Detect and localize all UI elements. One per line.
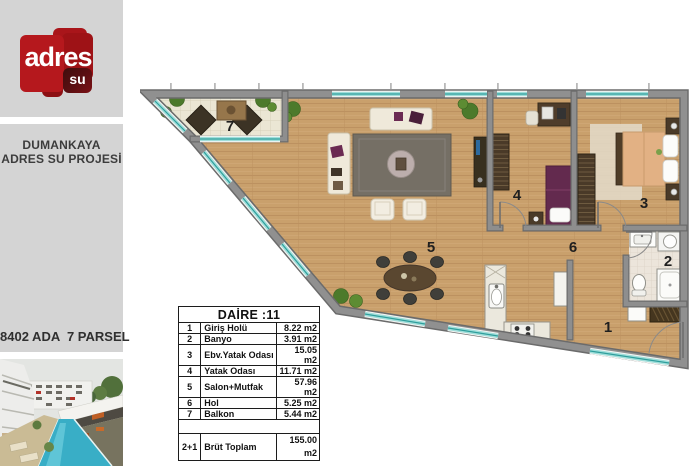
dimension-ticks	[170, 83, 650, 89]
pillow	[550, 208, 570, 222]
shower-drain	[669, 284, 672, 287]
flyer: adres su DUMANKAYA ADRES SU PROJESİ 8402…	[0, 0, 700, 466]
dining-chair	[377, 257, 390, 268]
pillow	[663, 160, 678, 182]
room-label-1: 1	[604, 319, 612, 336]
sidebar: adres su DUMANKAYA ADRES SU PROJESİ 8402…	[0, 0, 123, 466]
room-no: 5	[179, 377, 201, 398]
adres-su-logo: adres su	[18, 26, 102, 98]
dining-chair	[431, 289, 444, 300]
shoe-cabinet	[628, 306, 646, 321]
room-area: 5.25 m2	[277, 398, 320, 409]
bed-decor	[656, 149, 662, 155]
room-label-5: 5	[427, 239, 435, 256]
table-header-row: DAİRE :11	[179, 307, 320, 323]
room-area: 15.05 m2	[277, 345, 320, 366]
table-row: 6 Hol 5.25 m2	[179, 398, 320, 409]
spacer-cell	[179, 420, 320, 434]
table-row: 4 Yatak Odası 11.71 m2	[179, 366, 320, 377]
room-name: Hol	[201, 398, 277, 409]
room-no: 1	[179, 323, 201, 334]
lamp	[534, 217, 539, 222]
logo-wordmark: adres	[18, 42, 98, 73]
total-type: 2+1	[179, 434, 201, 461]
table-decor	[401, 273, 407, 279]
table-row: 7 Balkon 5.44 m2	[179, 409, 320, 420]
sink-basin	[492, 289, 502, 305]
project-name-line1: DUMANKAYA	[0, 138, 123, 152]
total-label: Brüt Toplam	[201, 434, 277, 461]
parcel-label: 8402 ADA 7 PARSEL	[0, 329, 123, 344]
table-total-row: 2+1 Brüt Toplam 155.00 m2	[179, 434, 320, 461]
sofa-item	[333, 181, 343, 190]
bed-footboard	[616, 133, 623, 185]
project-photo-image	[0, 359, 123, 466]
room-name: Balkon	[201, 409, 277, 420]
room-no: 7	[179, 409, 201, 420]
lamp	[671, 189, 677, 195]
room-no: 2	[179, 334, 201, 345]
wardrobe	[578, 154, 595, 226]
dining-chair	[404, 252, 417, 263]
room-name: Giriş Holü	[201, 323, 277, 334]
room-no: 6	[179, 398, 201, 409]
room-name: Banyo	[201, 334, 277, 345]
toilet-tank	[632, 290, 646, 296]
room-area: 5.44 m2	[277, 409, 320, 420]
sofa-cushion	[394, 112, 403, 121]
burner	[515, 326, 520, 331]
divider	[0, 117, 123, 124]
room-name: Salon+Mutfak	[201, 377, 277, 398]
room-name: Yatak Odası	[201, 366, 277, 377]
desk-chair	[526, 111, 538, 125]
room-area: 11.71 m2	[277, 366, 320, 377]
unit-title: DAİRE :11	[179, 307, 320, 323]
room-label-2: 2	[664, 253, 672, 270]
balcony-table-decor	[227, 106, 236, 115]
room-area: 3.91 m2	[277, 334, 320, 345]
logo-su-text: su	[63, 71, 92, 87]
table-row: 5 Salon+Mutfak 57.96 m2	[179, 377, 320, 398]
divider	[0, 352, 123, 359]
dining-set	[377, 252, 444, 305]
room-label-3: 3	[640, 195, 648, 212]
dining-chair	[377, 289, 390, 300]
table-decor	[412, 277, 417, 282]
room-name: Ebv.Yatak Odası	[201, 345, 277, 366]
room-label-6: 6	[569, 239, 577, 256]
pillow	[663, 135, 678, 157]
table-spacer-row	[179, 420, 320, 434]
dining-table	[384, 265, 436, 291]
room-no: 3	[179, 345, 201, 366]
room-label-7: 7	[226, 118, 234, 135]
coffee-table-tray	[396, 158, 406, 170]
room-area: 57.96 m2	[277, 377, 320, 398]
wardrobe	[493, 134, 509, 190]
lamp	[671, 123, 677, 129]
project-photo	[0, 359, 123, 466]
burner	[526, 326, 531, 331]
washer-door	[664, 235, 677, 248]
table-row: 3 Ebv.Yatak Odası 15.05 m2	[179, 345, 320, 366]
tv-screen	[476, 140, 480, 155]
entry-hall-items	[628, 306, 683, 322]
table-row: 2 Banyo 3.91 m2	[179, 334, 320, 345]
total-area: 155.00 m2	[277, 434, 320, 461]
desk-item	[557, 108, 566, 119]
dining-chair	[404, 294, 417, 305]
room-area: 8.22 m2	[277, 323, 320, 334]
table-row: 1 Giriş Holü 8.22 m2	[179, 323, 320, 334]
project-name: DUMANKAYA ADRES SU PROJESİ	[0, 138, 123, 166]
faucet	[495, 285, 499, 289]
dining-chair	[431, 257, 444, 268]
project-name-line2: ADRES SU PROJESİ	[0, 152, 123, 166]
laptop	[542, 107, 553, 119]
faucet	[641, 235, 643, 237]
toilet	[633, 275, 646, 292]
area-table: DAİRE :11 1 Giriş Holü 8.22 m2 2 Banyo 3…	[178, 306, 320, 461]
tv-unit-detail	[478, 178, 483, 183]
room-no: 4	[179, 366, 201, 377]
sofa-item	[331, 168, 342, 176]
room-label-4: 4	[513, 187, 522, 204]
